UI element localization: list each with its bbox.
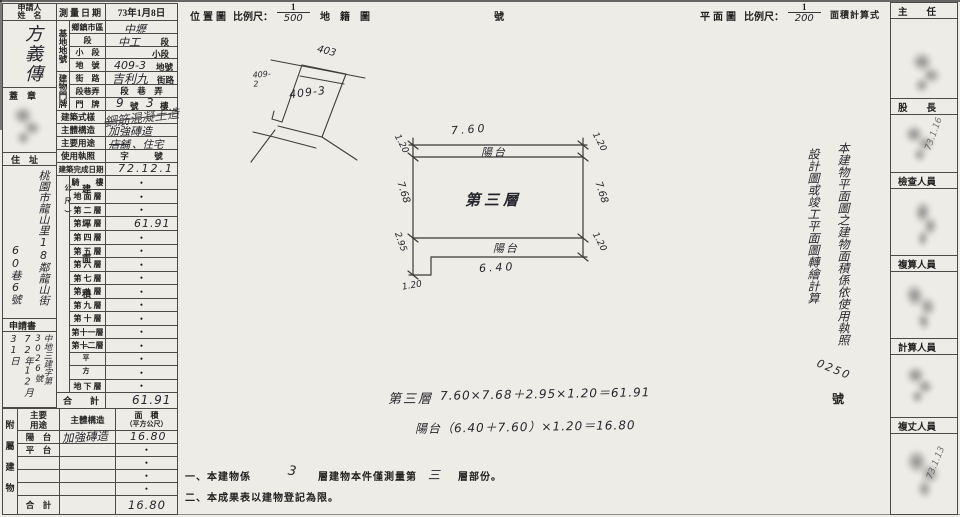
floor-plan-scale-denominator: 200: [788, 13, 821, 24]
area-row-label: 第 六 層: [69, 257, 106, 272]
annex-total-area: 16.80: [128, 498, 166, 512]
calc-note-column-right: 本建物平面圖之建物面積係依使用執照: [836, 142, 849, 357]
areas-total-label: 合 計: [56, 392, 106, 409]
location-map-sketch: 403 409-3 409-2: [245, 38, 415, 173]
annex-row-structure: [59, 443, 116, 457]
annex-row-use: [17, 469, 60, 483]
application-cell: 中地三建字第3026號 72年12月31日: [2, 331, 57, 408]
room-label: 第三層: [465, 189, 522, 210]
usage-label: 主要用途: [56, 136, 106, 150]
applicant-label-2: 姓 名: [18, 12, 42, 20]
area-row-value: •: [105, 284, 178, 299]
area-row-value: •: [105, 311, 178, 326]
area-row-value: •: [105, 271, 178, 285]
annex-total-structure: [59, 495, 116, 515]
calc-note-column-left: 設計圖或竣工平面圖轉繪計算: [806, 148, 819, 313]
area-row-label: 第 五 層: [69, 244, 106, 258]
door-row-value: 吉利九 街路: [105, 71, 178, 85]
license-label: 使用執照: [56, 149, 106, 163]
annex-total-label: 合 計: [17, 495, 60, 515]
annex-group-label: 附屬建物: [2, 408, 18, 515]
area-row-label: 第 七 層: [69, 271, 106, 285]
signoff-box-section-chief: 73.1.16: [890, 114, 958, 173]
area-row-value: •: [105, 203, 178, 217]
area-row-value: •: [105, 352, 178, 366]
annex-row-structure: [59, 482, 116, 496]
annex-header-area-1: 面 積: [135, 411, 159, 420]
areas-group-cell: 建坪面積 （平方公尺）: [56, 175, 70, 393]
area-row-label: 第十一層: [69, 325, 106, 339]
location-number-suffix: 號: [494, 8, 504, 23]
annex-total-area-cell: 16.80: [115, 495, 178, 515]
signoff-title-surveyor: 複丈人員: [890, 417, 958, 434]
area-row-label: 第 二 層: [69, 203, 106, 217]
floor-plan-scale-label: 比例尺：: [744, 8, 784, 23]
applicant-stamp-smudge: [6, 101, 48, 150]
signoff-title-recheck: 複算人員: [890, 255, 958, 272]
formula-floor-expr: 7.60×7.68＋2.95×1.20＝61.91: [440, 383, 651, 404]
area-row-value: •: [105, 325, 178, 339]
floor-plan-scale-fraction: 1 200: [788, 2, 821, 24]
floor-plan-scale-numerator: 1: [788, 2, 821, 13]
location-map-title: 位置圖: [190, 8, 229, 23]
areas-total-cell: 61.91: [105, 392, 178, 409]
annex-row-use: 平 台: [17, 443, 60, 457]
door-row-label: 街 路: [69, 71, 106, 85]
dim-bottom: 6.40: [479, 260, 516, 275]
area-row-label: 騎 樓: [69, 175, 106, 190]
signoff-box-inspector: [890, 188, 958, 256]
usage-value-cell: 店舖 、住宅: [105, 136, 178, 150]
stamp-smudge: [908, 196, 943, 251]
location-scale-label: 比例尺：: [233, 8, 273, 23]
location-scale-fraction: 1 500: [277, 2, 310, 24]
site-row-label: 地 號: [69, 58, 106, 72]
footnote-2: 二、本成果表以建物登記為限。: [185, 489, 339, 504]
completion-value: 72.12.1: [118, 162, 174, 175]
applicant-name: 方義傳: [19, 24, 45, 84]
annex-row-area: •: [115, 469, 178, 483]
area-row-value: •: [105, 338, 178, 353]
annex-row-structure: [59, 469, 116, 483]
address-line-2: 60巷6號: [7, 244, 23, 305]
signoff-box-calculator: [890, 354, 958, 418]
area-row-label: 第 八 層: [69, 284, 106, 299]
area-row-value: •: [105, 365, 178, 380]
style-label: 建築式樣: [56, 110, 106, 124]
door-row-label: 門 牌: [69, 97, 106, 111]
footnote-1-surveyed-floor: 三: [428, 466, 440, 483]
area-row-value-floor3: 61.91: [105, 216, 178, 231]
annex-row-area: •: [115, 456, 178, 470]
survey-date-value: 73年1月8日: [105, 3, 178, 21]
applicant-header-cell: 申請人 姓 名: [2, 3, 57, 21]
signoff-title-section-chief: 股 長: [890, 98, 958, 115]
area-row-value: •: [105, 244, 178, 258]
area-row-value: •: [105, 257, 178, 272]
footnote-1-floors-number: 3: [287, 463, 297, 479]
scan-edge-bottom: [170, 514, 960, 515]
signoff-title-calculator: 計算人員: [890, 338, 958, 355]
balcony-bottom-label: 陽台: [493, 240, 519, 256]
completion-value-cell: 72.12.1: [105, 162, 178, 176]
address-cell: 桃園市龍山里18鄰龍山街 60巷6號: [2, 165, 57, 319]
stamp-smudge: [900, 275, 944, 335]
site-row-value: 中壢: [105, 20, 178, 34]
calc-note-number-suffix: 號: [832, 390, 844, 407]
calc-note-license-number: 0250: [815, 357, 853, 383]
area-row-value: •: [105, 230, 178, 245]
annex-row-area: •: [115, 482, 178, 496]
area-row-label: [69, 365, 106, 380]
area-row-value: •: [105, 379, 178, 393]
seal-label: 蓋 章: [3, 88, 56, 103]
applicant-name-cell: 方義傳: [2, 20, 57, 88]
area-row-value: •: [105, 298, 178, 312]
area-row-label: 第 三 層: [69, 216, 106, 231]
annex-header-area-2: （平方公尺）: [126, 420, 168, 429]
areas-total-value: 61.91: [132, 393, 171, 407]
site-row-value: 中工 段: [105, 33, 178, 47]
parcel-label-409-2: 409-2: [252, 69, 272, 89]
application-label: 申請書: [2, 318, 57, 332]
seal-cell: 蓋 章: [2, 87, 57, 153]
door-house-number: 9: [116, 96, 124, 110]
signoff-title-director: 主 任: [890, 2, 958, 19]
site-group-label: 基地地號: [56, 20, 70, 72]
survey-date-label: 測量日期: [56, 3, 106, 21]
signoff-box-recheck: [890, 271, 958, 339]
completion-label: 建築完成日期: [56, 162, 106, 176]
footnote-1-prefix: 一、本建物係: [185, 468, 251, 483]
annex-row-use: 陽 台: [17, 430, 60, 444]
annex-row-area: 16.80: [115, 430, 178, 444]
location-scale-numerator: 1: [277, 2, 310, 13]
floor-plan-drawing: 7.60 1.20 1.20 陽台 7.68 7.68 第三層 陽台 1.20 …: [393, 123, 618, 308]
floor-plan-title: 平面圖: [700, 8, 739, 23]
license-value: 字 號: [105, 149, 178, 163]
location-scale-denominator: 500: [277, 13, 310, 24]
site-row-label: 段: [69, 33, 106, 47]
area-calc-label: 面積計算式: [830, 8, 880, 21]
annex-row-structure: 加強磚造: [59, 430, 116, 444]
site-row-label: 鄉鎮市區: [69, 20, 106, 34]
area-row-label: 第 十 層: [69, 311, 106, 326]
annex-row-use: [17, 482, 60, 496]
signoff-box-director: [890, 18, 958, 99]
signoff-title-inspector: 檢查人員: [890, 172, 958, 189]
address-line-1: 桃園市龍山里18鄰龍山街: [37, 170, 50, 306]
formula-floor-label: 第三層: [388, 388, 433, 407]
application-number: 中地三建字第3026號: [33, 334, 51, 407]
footnote-1-suffix: 層部份。: [458, 468, 502, 483]
footnote-1-middle: 層建物本件僅測量第: [318, 468, 417, 483]
survey-form-sheet: 申請人 姓 名 測量日期 73年1月8日 方義傳 蓋 章 住 址 桃園市龍山里1…: [0, 0, 960, 517]
stamp-smudge: [902, 362, 939, 406]
annex-header-area: 面 積 （平方公尺）: [115, 408, 178, 431]
annex-row-area: •: [115, 443, 178, 457]
stamp-smudge: [903, 46, 948, 98]
dim-top: 7.60: [451, 122, 488, 138]
door-row-label: 段巷弄: [69, 84, 106, 98]
signoff-box-surveyor: 73.1.13: [890, 433, 958, 515]
area-row-label: 第 四 層: [69, 230, 106, 245]
annex-row-structure: [59, 456, 116, 470]
door-group-label: 建物門牌: [56, 71, 70, 111]
area-row-label: 第十二層: [69, 338, 106, 353]
annex-row-use: [17, 456, 60, 470]
balcony-top-label: 陽台: [481, 144, 507, 160]
application-date: 72年12月31日: [6, 334, 34, 407]
cadastral-map-label: 地 籍 圖: [320, 8, 370, 23]
area-row-label: 地 面 層: [69, 189, 106, 204]
area-row-label: [69, 352, 106, 366]
annex-area-value: 16.80: [130, 430, 167, 443]
area-row-value: •: [105, 189, 178, 204]
formula-balcony-expr: 陽台（6.40＋7.60）×1.20＝16.80: [415, 416, 636, 437]
annex-header-use: 主要用途: [17, 408, 60, 431]
address-label: 住 址: [2, 152, 57, 166]
area-row-value: •: [105, 175, 178, 190]
structure-label: 主體構造: [56, 123, 106, 137]
area-floor3-value: 61.91: [134, 217, 171, 230]
area-row-label: 第 九 層: [69, 298, 106, 312]
area-row-label: 地 下 層: [69, 379, 106, 393]
